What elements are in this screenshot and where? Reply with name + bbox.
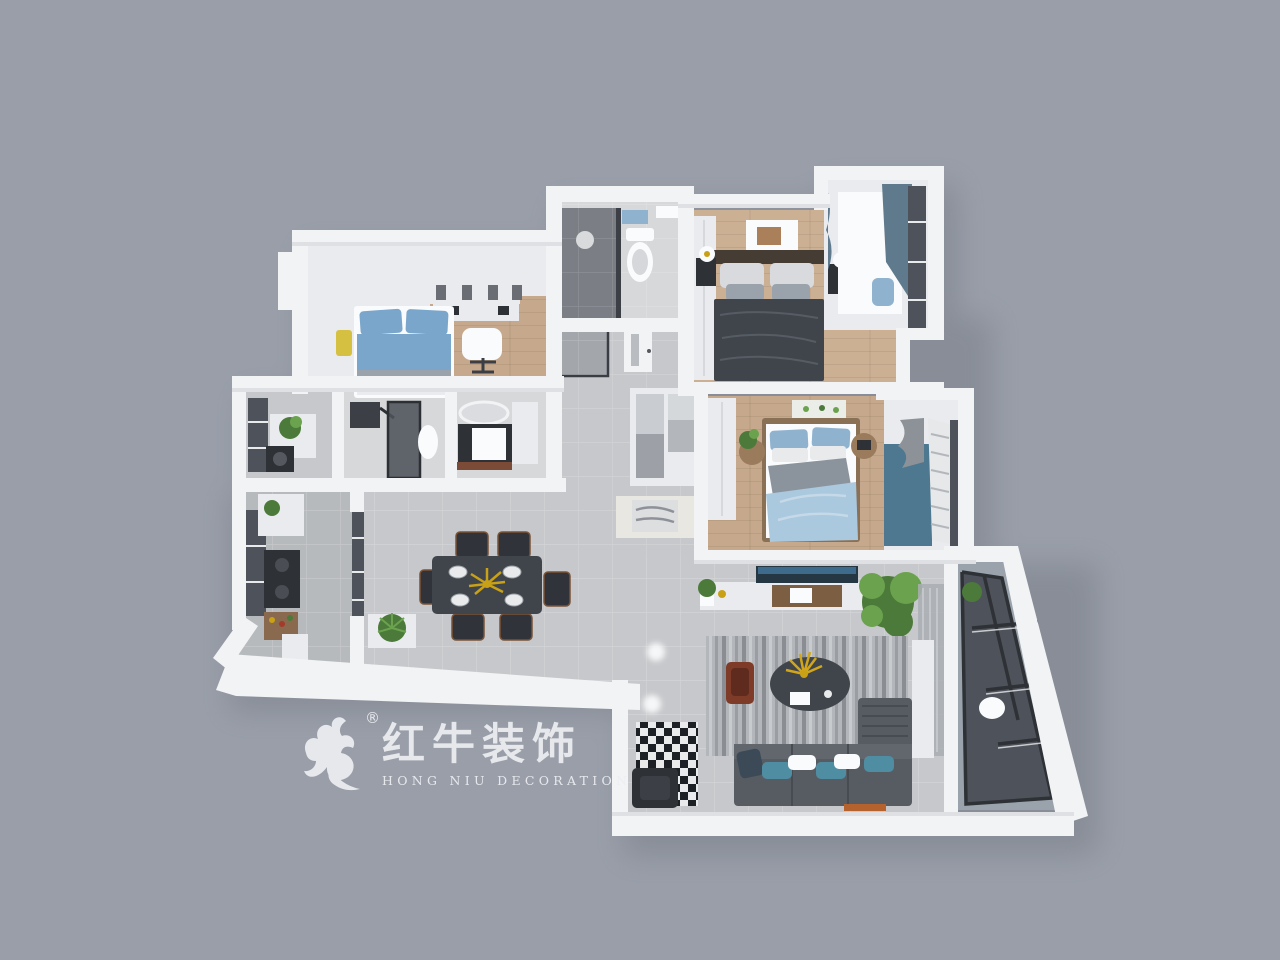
white-pillow — [834, 754, 860, 769]
entry-armchair — [632, 768, 678, 808]
interior-door — [624, 328, 652, 372]
teal-pillow — [762, 762, 792, 779]
round-nightstand-right — [851, 433, 877, 459]
shoe-cabinet — [616, 496, 696, 538]
shower-drain — [576, 231, 594, 249]
towel-shelf — [622, 210, 648, 224]
utility-window — [248, 398, 268, 472]
bay-window-glass — [908, 186, 926, 328]
bay-window — [826, 184, 926, 328]
nook-window-frame — [950, 420, 958, 546]
glass-partition — [352, 508, 364, 620]
sink-vanity — [472, 428, 506, 460]
cushion — [872, 278, 894, 306]
shower-fixture — [350, 402, 380, 428]
double-bed-blue — [762, 418, 860, 542]
stove-oven — [264, 550, 300, 608]
hall-closet — [630, 388, 702, 486]
side-cabinet — [512, 402, 538, 464]
tv — [756, 566, 858, 583]
toilet — [418, 425, 438, 459]
kitchen-plant — [264, 500, 280, 516]
kitchen-counter — [258, 494, 304, 536]
curtain-panel — [912, 640, 934, 758]
balcony-plant — [962, 582, 982, 602]
wood-shelf — [456, 462, 512, 470]
yellow-pillow — [336, 330, 352, 356]
balcony-table — [979, 697, 1005, 719]
oval-mirror — [460, 402, 508, 424]
teal-pillow — [864, 756, 894, 772]
shower-glass — [616, 208, 621, 318]
lounge-chair — [726, 662, 754, 704]
console-plant — [698, 579, 716, 606]
white-pillow — [788, 755, 816, 770]
toilet — [626, 228, 654, 282]
dining-plant — [368, 613, 416, 648]
floorplan-3d-render — [0, 0, 1280, 960]
wall-art — [746, 220, 798, 252]
wall-art — [792, 400, 846, 418]
sink — [656, 206, 678, 218]
sofa-leg-wood — [844, 804, 886, 811]
vanity-bathroom — [456, 402, 538, 470]
shower-glass-panel — [388, 402, 420, 478]
